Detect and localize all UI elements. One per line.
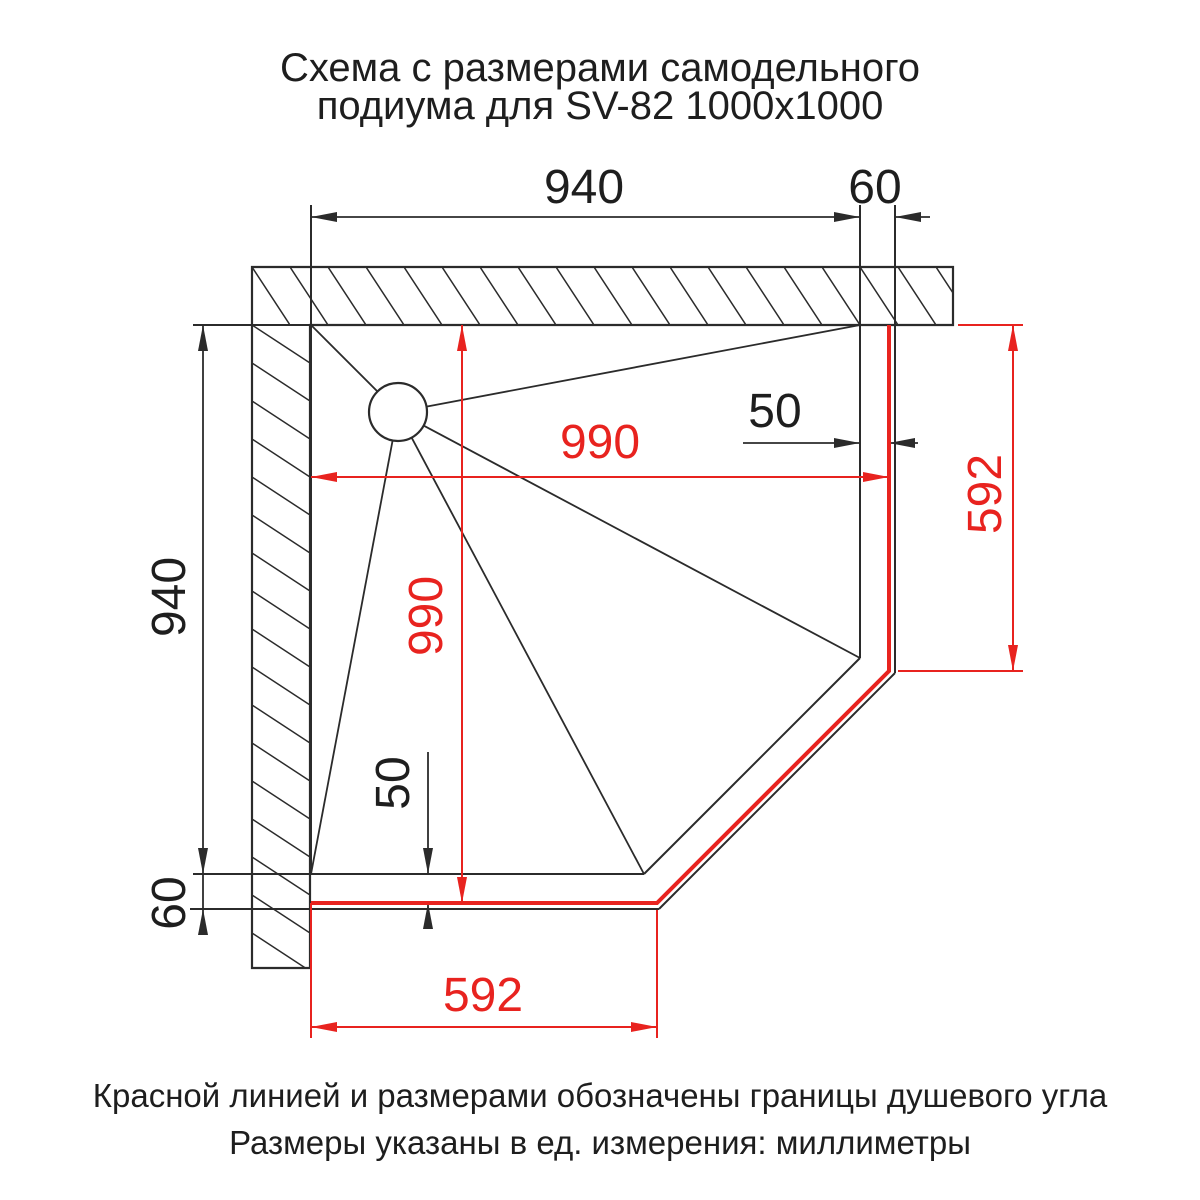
legend-note-units: Размеры указаны в ед. измерения: миллиме… [229, 1124, 971, 1161]
arrow-up-icon [198, 325, 208, 351]
dim-label-front-edge-right: 592 [959, 454, 1012, 534]
arrow-left-icon [889, 438, 915, 448]
arrow-up-icon [423, 903, 433, 929]
diagram-title-line2: подиума для SV-82 1000x1000 [317, 84, 884, 128]
legend-note-red-boundary: Красной линией и размерами обозначены гр… [93, 1077, 1108, 1114]
dim-label-podium-overhang-top: 60 [848, 161, 901, 214]
arrow-up-icon [1008, 325, 1018, 351]
arrow-right-icon [834, 438, 860, 448]
dim-label-podium-overhang-bottom: 60 [143, 876, 196, 929]
arrow-left-icon [311, 472, 337, 482]
arrow-down-icon [457, 877, 467, 903]
arrow-right-icon [863, 472, 889, 482]
podium-corner-cut-edge [659, 673, 895, 909]
slope-line-right [424, 426, 860, 658]
wall-top-hatch [252, 267, 953, 325]
dim-label-tray-depth-left: 940 [143, 557, 196, 637]
tray-corner-cut-edge [644, 658, 860, 874]
arrow-right-icon [631, 1022, 657, 1032]
wall-left-hatch [252, 325, 310, 968]
arrow-up-icon [198, 909, 208, 935]
dim-label-glass-offset-right: 50 [748, 385, 801, 438]
slope-line-top-left [311, 325, 378, 392]
dim-label-glass-offset-bottom: 50 [367, 756, 420, 809]
dim-label-front-edge-bottom: 592 [443, 969, 523, 1022]
dim-label-shower-zone-depth: 990 [400, 576, 453, 656]
arrow-left-icon [311, 212, 337, 222]
drain-circle [369, 383, 427, 441]
arrow-left-icon [311, 1022, 337, 1032]
arrow-up-icon [457, 325, 467, 351]
dim-label-shower-zone-width: 990 [560, 416, 640, 469]
dim-label-tray-width-top: 940 [544, 161, 624, 214]
arrow-down-icon [423, 848, 433, 874]
arrow-down-icon [1008, 645, 1018, 671]
podium-dimension-diagram: Схема с размерами самодельного подиума д… [0, 0, 1200, 1200]
arrow-down-icon [198, 848, 208, 874]
